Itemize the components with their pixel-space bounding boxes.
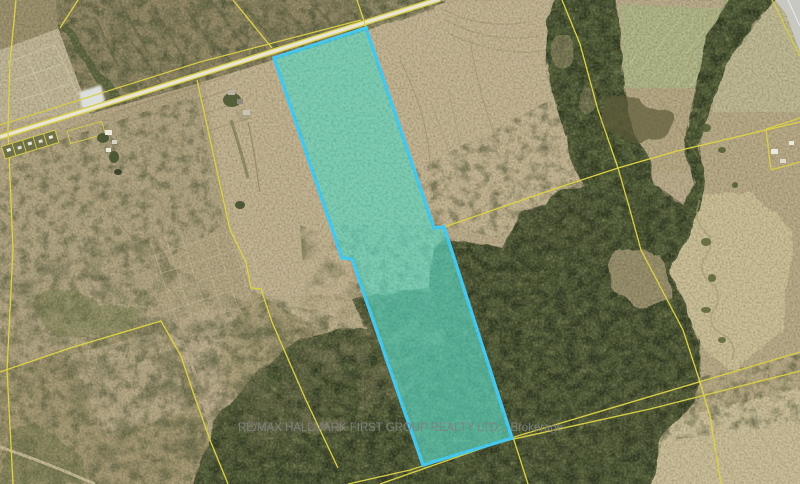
svg-text:RE/MAX HALLMARK FIRST GROUP RE: RE/MAX HALLMARK FIRST GROUP REALTY LTD.,…: [238, 421, 563, 434]
